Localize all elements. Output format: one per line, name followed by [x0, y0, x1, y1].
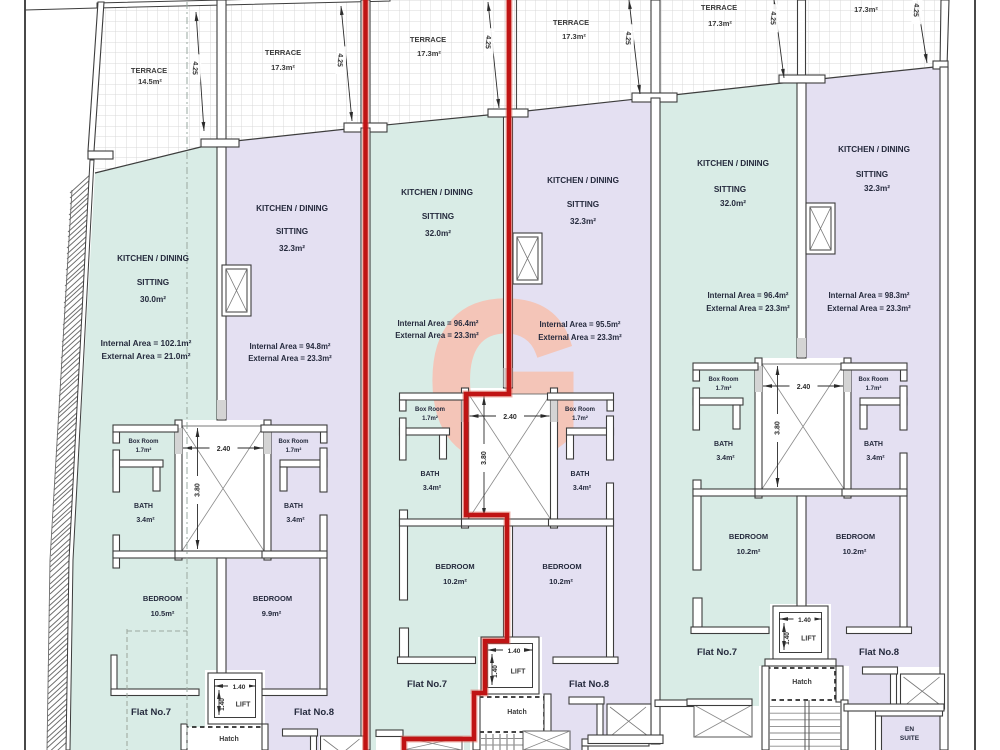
svg-text:KITCHEN / DINING: KITCHEN / DINING: [401, 188, 473, 197]
svg-text:32.0m²: 32.0m²: [425, 229, 451, 238]
svg-text:1.7m²: 1.7m²: [422, 415, 438, 422]
svg-text:BEDROOM: BEDROOM: [253, 594, 292, 603]
svg-text:SITTING: SITTING: [856, 170, 888, 179]
svg-text:32.0m²: 32.0m²: [720, 199, 746, 208]
svg-text:Internal Area = 96.4m²: Internal Area = 96.4m²: [708, 291, 789, 300]
svg-text:Box Room: Box Room: [129, 439, 159, 445]
svg-text:32.3m²: 32.3m²: [279, 244, 305, 253]
svg-text:KITCHEN / DINING: KITCHEN / DINING: [838, 145, 910, 154]
svg-text:9.9m²: 9.9m²: [262, 609, 282, 618]
svg-text:External Area = 23.3m²: External Area = 23.3m²: [538, 333, 622, 342]
svg-text:17.3m²: 17.3m²: [708, 19, 732, 28]
svg-text:Flat No.8: Flat No.8: [294, 707, 334, 718]
svg-text:LIFT: LIFT: [236, 702, 251, 709]
svg-text:Flat No.7: Flat No.7: [131, 707, 171, 718]
svg-text:TERRACE: TERRACE: [131, 66, 167, 75]
svg-text:SUITE: SUITE: [900, 735, 920, 742]
svg-text:Internal Area = 98.3m²: Internal Area = 98.3m²: [829, 291, 910, 300]
svg-text:10.2m²: 10.2m²: [737, 547, 761, 556]
svg-text:3.4m²: 3.4m²: [136, 517, 155, 524]
svg-text:4.25: 4.25: [484, 35, 492, 49]
svg-text:17.3m²: 17.3m²: [271, 63, 295, 72]
svg-text:KITCHEN / DINING: KITCHEN / DINING: [256, 204, 328, 213]
svg-text:3.80: 3.80: [775, 421, 782, 435]
svg-text:BEDROOM: BEDROOM: [435, 562, 474, 571]
svg-text:17.3m²: 17.3m²: [854, 5, 878, 14]
svg-text:1.7m²: 1.7m²: [716, 385, 732, 392]
svg-text:BATH: BATH: [571, 471, 590, 478]
svg-text:Box Room: Box Room: [709, 377, 739, 383]
svg-text:Internal Area = 94.8m²: Internal Area = 94.8m²: [250, 342, 331, 351]
svg-text:4.25: 4.25: [912, 3, 920, 17]
svg-text:Internal Area = 102.1m²: Internal Area = 102.1m²: [101, 338, 192, 348]
svg-text:BATH: BATH: [421, 471, 440, 478]
svg-text:SITTING: SITTING: [276, 227, 308, 236]
svg-text:BEDROOM: BEDROOM: [836, 532, 875, 541]
svg-text:SITTING: SITTING: [567, 200, 599, 209]
svg-text:10.2m²: 10.2m²: [443, 577, 467, 586]
svg-text:14.5m²: 14.5m²: [138, 77, 162, 86]
svg-text:BATH: BATH: [284, 503, 303, 510]
svg-text:Flat No.7: Flat No.7: [407, 679, 447, 690]
svg-text:BATH: BATH: [134, 503, 153, 510]
svg-text:EN: EN: [905, 726, 914, 733]
svg-text:BATH: BATH: [714, 441, 733, 448]
svg-text:External Area = 23.3m²: External Area = 23.3m²: [248, 354, 332, 363]
svg-text:3.4m²: 3.4m²: [716, 455, 735, 462]
svg-text:1.40: 1.40: [798, 617, 811, 624]
svg-text:1.40: 1.40: [492, 665, 499, 678]
svg-text:Box Room: Box Room: [415, 407, 445, 413]
svg-text:LIFT: LIFT: [511, 669, 526, 676]
svg-text:BEDROOM: BEDROOM: [542, 562, 581, 571]
svg-text:SITTING: SITTING: [137, 278, 169, 287]
svg-text:1.40: 1.40: [784, 632, 791, 645]
svg-text:KITCHEN / DINING: KITCHEN / DINING: [547, 176, 619, 185]
svg-text:2.40: 2.40: [797, 384, 811, 391]
svg-text:10.2m²: 10.2m²: [843, 547, 867, 556]
svg-text:3.4m²: 3.4m²: [866, 455, 885, 462]
svg-text:KITCHEN / DINING: KITCHEN / DINING: [117, 254, 189, 263]
svg-text:3.4m²: 3.4m²: [423, 485, 442, 492]
svg-text:TERRACE: TERRACE: [553, 18, 589, 27]
svg-text:Box Room: Box Room: [859, 377, 889, 383]
svg-text:Box Room: Box Room: [279, 439, 309, 445]
svg-text:2.40: 2.40: [503, 414, 517, 421]
svg-text:SITTING: SITTING: [714, 185, 746, 194]
svg-text:1.7m²: 1.7m²: [136, 447, 152, 454]
svg-text:TERRACE: TERRACE: [265, 48, 301, 57]
svg-text:LIFT: LIFT: [801, 636, 816, 643]
svg-text:SITTING: SITTING: [422, 212, 454, 221]
svg-text:10.2m²: 10.2m²: [549, 577, 573, 586]
svg-text:32.3m²: 32.3m²: [864, 184, 890, 193]
svg-text:Flat No.8: Flat No.8: [859, 647, 899, 658]
svg-text:2.40: 2.40: [217, 446, 231, 453]
svg-text:30.0m²: 30.0m²: [140, 295, 166, 304]
svg-text:Hatch: Hatch: [507, 709, 526, 716]
svg-text:17.3m²: 17.3m²: [562, 32, 586, 41]
svg-text:3.4m²: 3.4m²: [573, 485, 592, 492]
svg-text:1.7m²: 1.7m²: [572, 415, 588, 422]
svg-text:External Area = 21.0m²: External Area = 21.0m²: [102, 351, 191, 361]
svg-text:1.40: 1.40: [219, 698, 226, 711]
svg-text:32.3m²: 32.3m²: [570, 217, 596, 226]
svg-text:External Area = 23.3m²: External Area = 23.3m²: [827, 304, 911, 313]
svg-text:3.80: 3.80: [195, 483, 202, 497]
svg-text:10.5m²: 10.5m²: [151, 609, 175, 618]
svg-text:4.25: 4.25: [336, 53, 344, 67]
svg-text:4.25: 4.25: [624, 31, 632, 45]
svg-text:4.25: 4.25: [769, 11, 777, 25]
svg-text:17.3m²: 17.3m²: [417, 49, 441, 58]
svg-text:4.25: 4.25: [191, 61, 199, 75]
svg-text:1.7m²: 1.7m²: [866, 385, 882, 392]
svg-text:BEDROOM: BEDROOM: [729, 532, 768, 541]
svg-text:Flat No.7: Flat No.7: [697, 647, 737, 658]
svg-text:3.80: 3.80: [481, 451, 488, 465]
svg-text:Flat No.8: Flat No.8: [569, 679, 609, 690]
svg-text:Hatch: Hatch: [219, 736, 238, 743]
svg-text:External Area = 23.3m²: External Area = 23.3m²: [706, 304, 790, 313]
svg-text:Internal Area = 95.5m²: Internal Area = 95.5m²: [540, 320, 621, 329]
svg-text:BEDROOM: BEDROOM: [143, 594, 182, 603]
svg-text:TERRACE: TERRACE: [701, 3, 737, 12]
svg-text:1.7m²: 1.7m²: [286, 447, 302, 454]
svg-text:Internal Area = 96.4m²: Internal Area = 96.4m²: [398, 319, 479, 328]
svg-text:KITCHEN / DINING: KITCHEN / DINING: [697, 159, 769, 168]
svg-text:1.40: 1.40: [508, 648, 521, 655]
svg-text:1.40: 1.40: [233, 684, 246, 691]
svg-text:External Area = 23.3m²: External Area = 23.3m²: [395, 331, 479, 340]
svg-text:Box Room: Box Room: [565, 407, 595, 413]
svg-text:Hatch: Hatch: [792, 679, 811, 686]
svg-text:3.4m²: 3.4m²: [286, 517, 305, 524]
svg-text:TERRACE: TERRACE: [410, 35, 446, 44]
svg-text:BATH: BATH: [864, 441, 883, 448]
